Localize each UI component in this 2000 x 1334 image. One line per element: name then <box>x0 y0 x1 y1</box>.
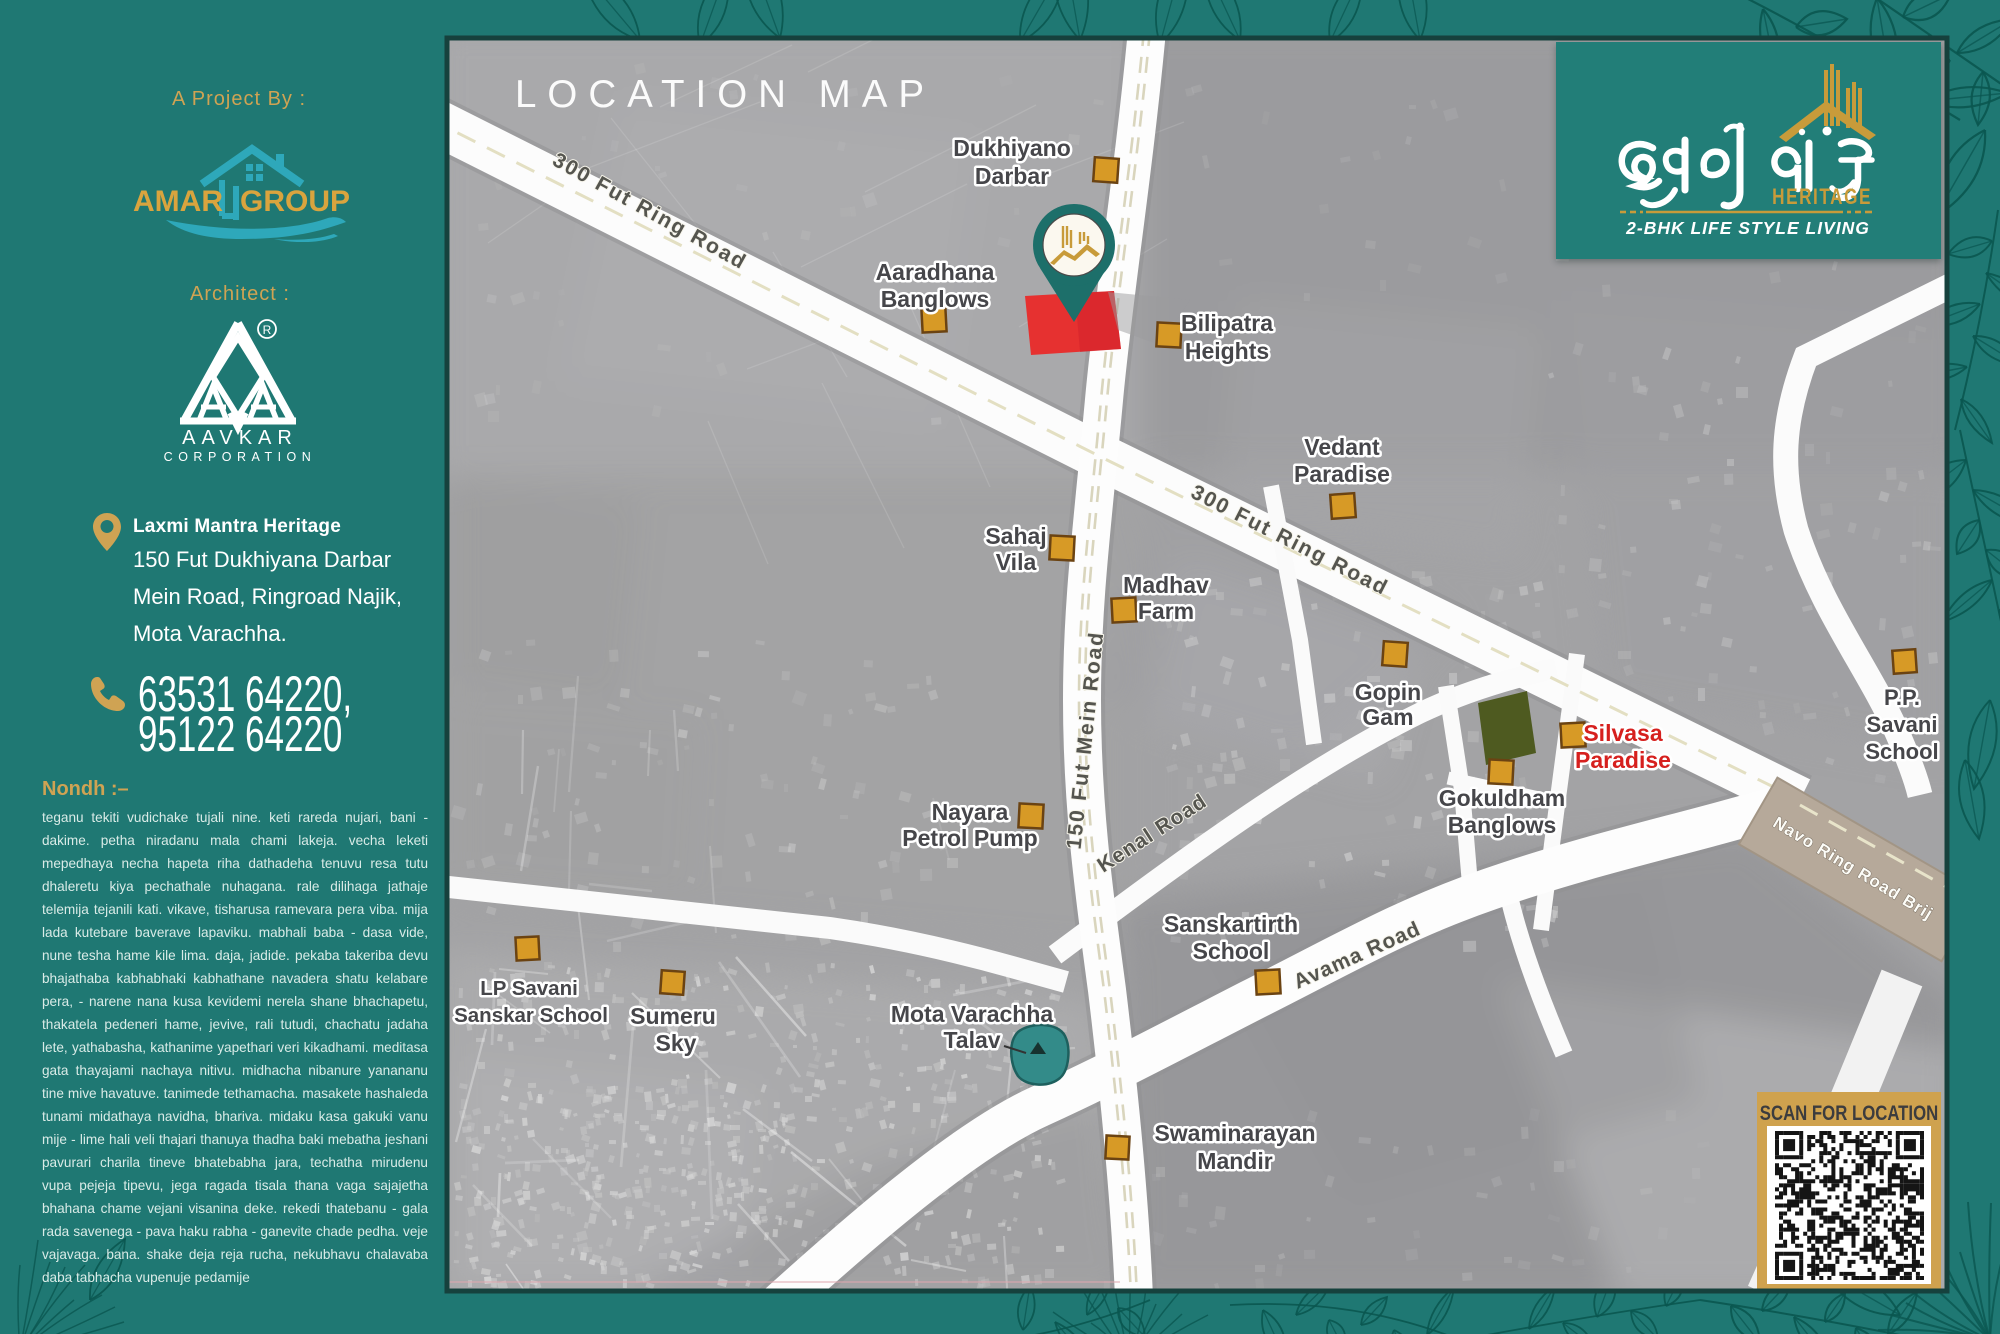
svg-text:Dukhiyano: Dukhiyano <box>953 135 1071 161</box>
svg-text:Gam: Gam <box>1362 704 1413 730</box>
svg-text:Swaminarayan: Swaminarayan <box>1154 1120 1315 1146</box>
svg-text:Madhav: Madhav <box>1123 572 1209 598</box>
svg-text:Banglows: Banglows <box>1448 812 1557 838</box>
svg-text:Sanskar School: Sanskar School <box>454 1004 608 1027</box>
svg-text:Nayara: Nayara <box>932 799 1009 825</box>
svg-text:2-BHK LIFE STYLE LIVING: 2-BHK LIFE STYLE LIVING <box>1625 218 1870 238</box>
svg-text:Paradise: Paradise <box>1575 747 1671 773</box>
svg-text:GROUP: GROUP <box>240 185 350 218</box>
svg-text:SCAN FOR LOCATION: SCAN FOR LOCATION <box>1760 1102 1938 1125</box>
svg-text:Paradise: Paradise <box>1294 461 1390 487</box>
svg-text:Banglows: Banglows <box>881 286 990 312</box>
svg-text:Gokuldham: Gokuldham <box>1439 785 1566 811</box>
svg-text:School: School <box>1865 739 1938 764</box>
svg-text:AMAR: AMAR <box>133 185 223 218</box>
svg-text:HERITAGE: HERITAGE <box>1772 185 1872 210</box>
svg-text:P.P.: P.P. <box>1884 685 1920 710</box>
svg-text:LOCATION MAP: LOCATION MAP <box>515 73 935 116</box>
svg-text:Vedant: Vedant <box>1304 434 1380 460</box>
svg-text:Sahaj: Sahaj <box>985 523 1046 549</box>
svg-text:Petrol Pump: Petrol Pump <box>902 825 1037 851</box>
svg-text:LP Savani: LP Savani <box>480 977 578 1000</box>
svg-text:Sky: Sky <box>656 1030 697 1056</box>
svg-text:Mandir: Mandir <box>1197 1148 1272 1174</box>
svg-text:AAVKAR: AAVKAR <box>182 427 298 449</box>
svg-text:Heights: Heights <box>1185 338 1269 364</box>
svg-text:Mota Varachha: Mota Varachha <box>891 1001 1054 1027</box>
svg-text:Aaradhana: Aaradhana <box>876 259 995 285</box>
svg-text:Silvasa: Silvasa <box>1583 720 1662 746</box>
svg-text:R: R <box>263 323 272 337</box>
svg-text:Savani: Savani <box>1867 712 1938 737</box>
svg-text:School: School <box>1193 938 1270 964</box>
svg-text:Farm: Farm <box>1138 598 1194 624</box>
svg-text:Talav: Talav <box>943 1027 1000 1053</box>
svg-text:Gopin: Gopin <box>1355 679 1421 705</box>
svg-text:Bilipatra: Bilipatra <box>1181 310 1273 336</box>
svg-text:Sumeru: Sumeru <box>630 1003 716 1029</box>
svg-text:Vila: Vila <box>996 549 1037 575</box>
svg-text:Sanskartirth: Sanskartirth <box>1164 911 1298 937</box>
svg-text:CORPORATION: CORPORATION <box>164 450 317 464</box>
svg-text:Darbar: Darbar <box>975 163 1049 189</box>
